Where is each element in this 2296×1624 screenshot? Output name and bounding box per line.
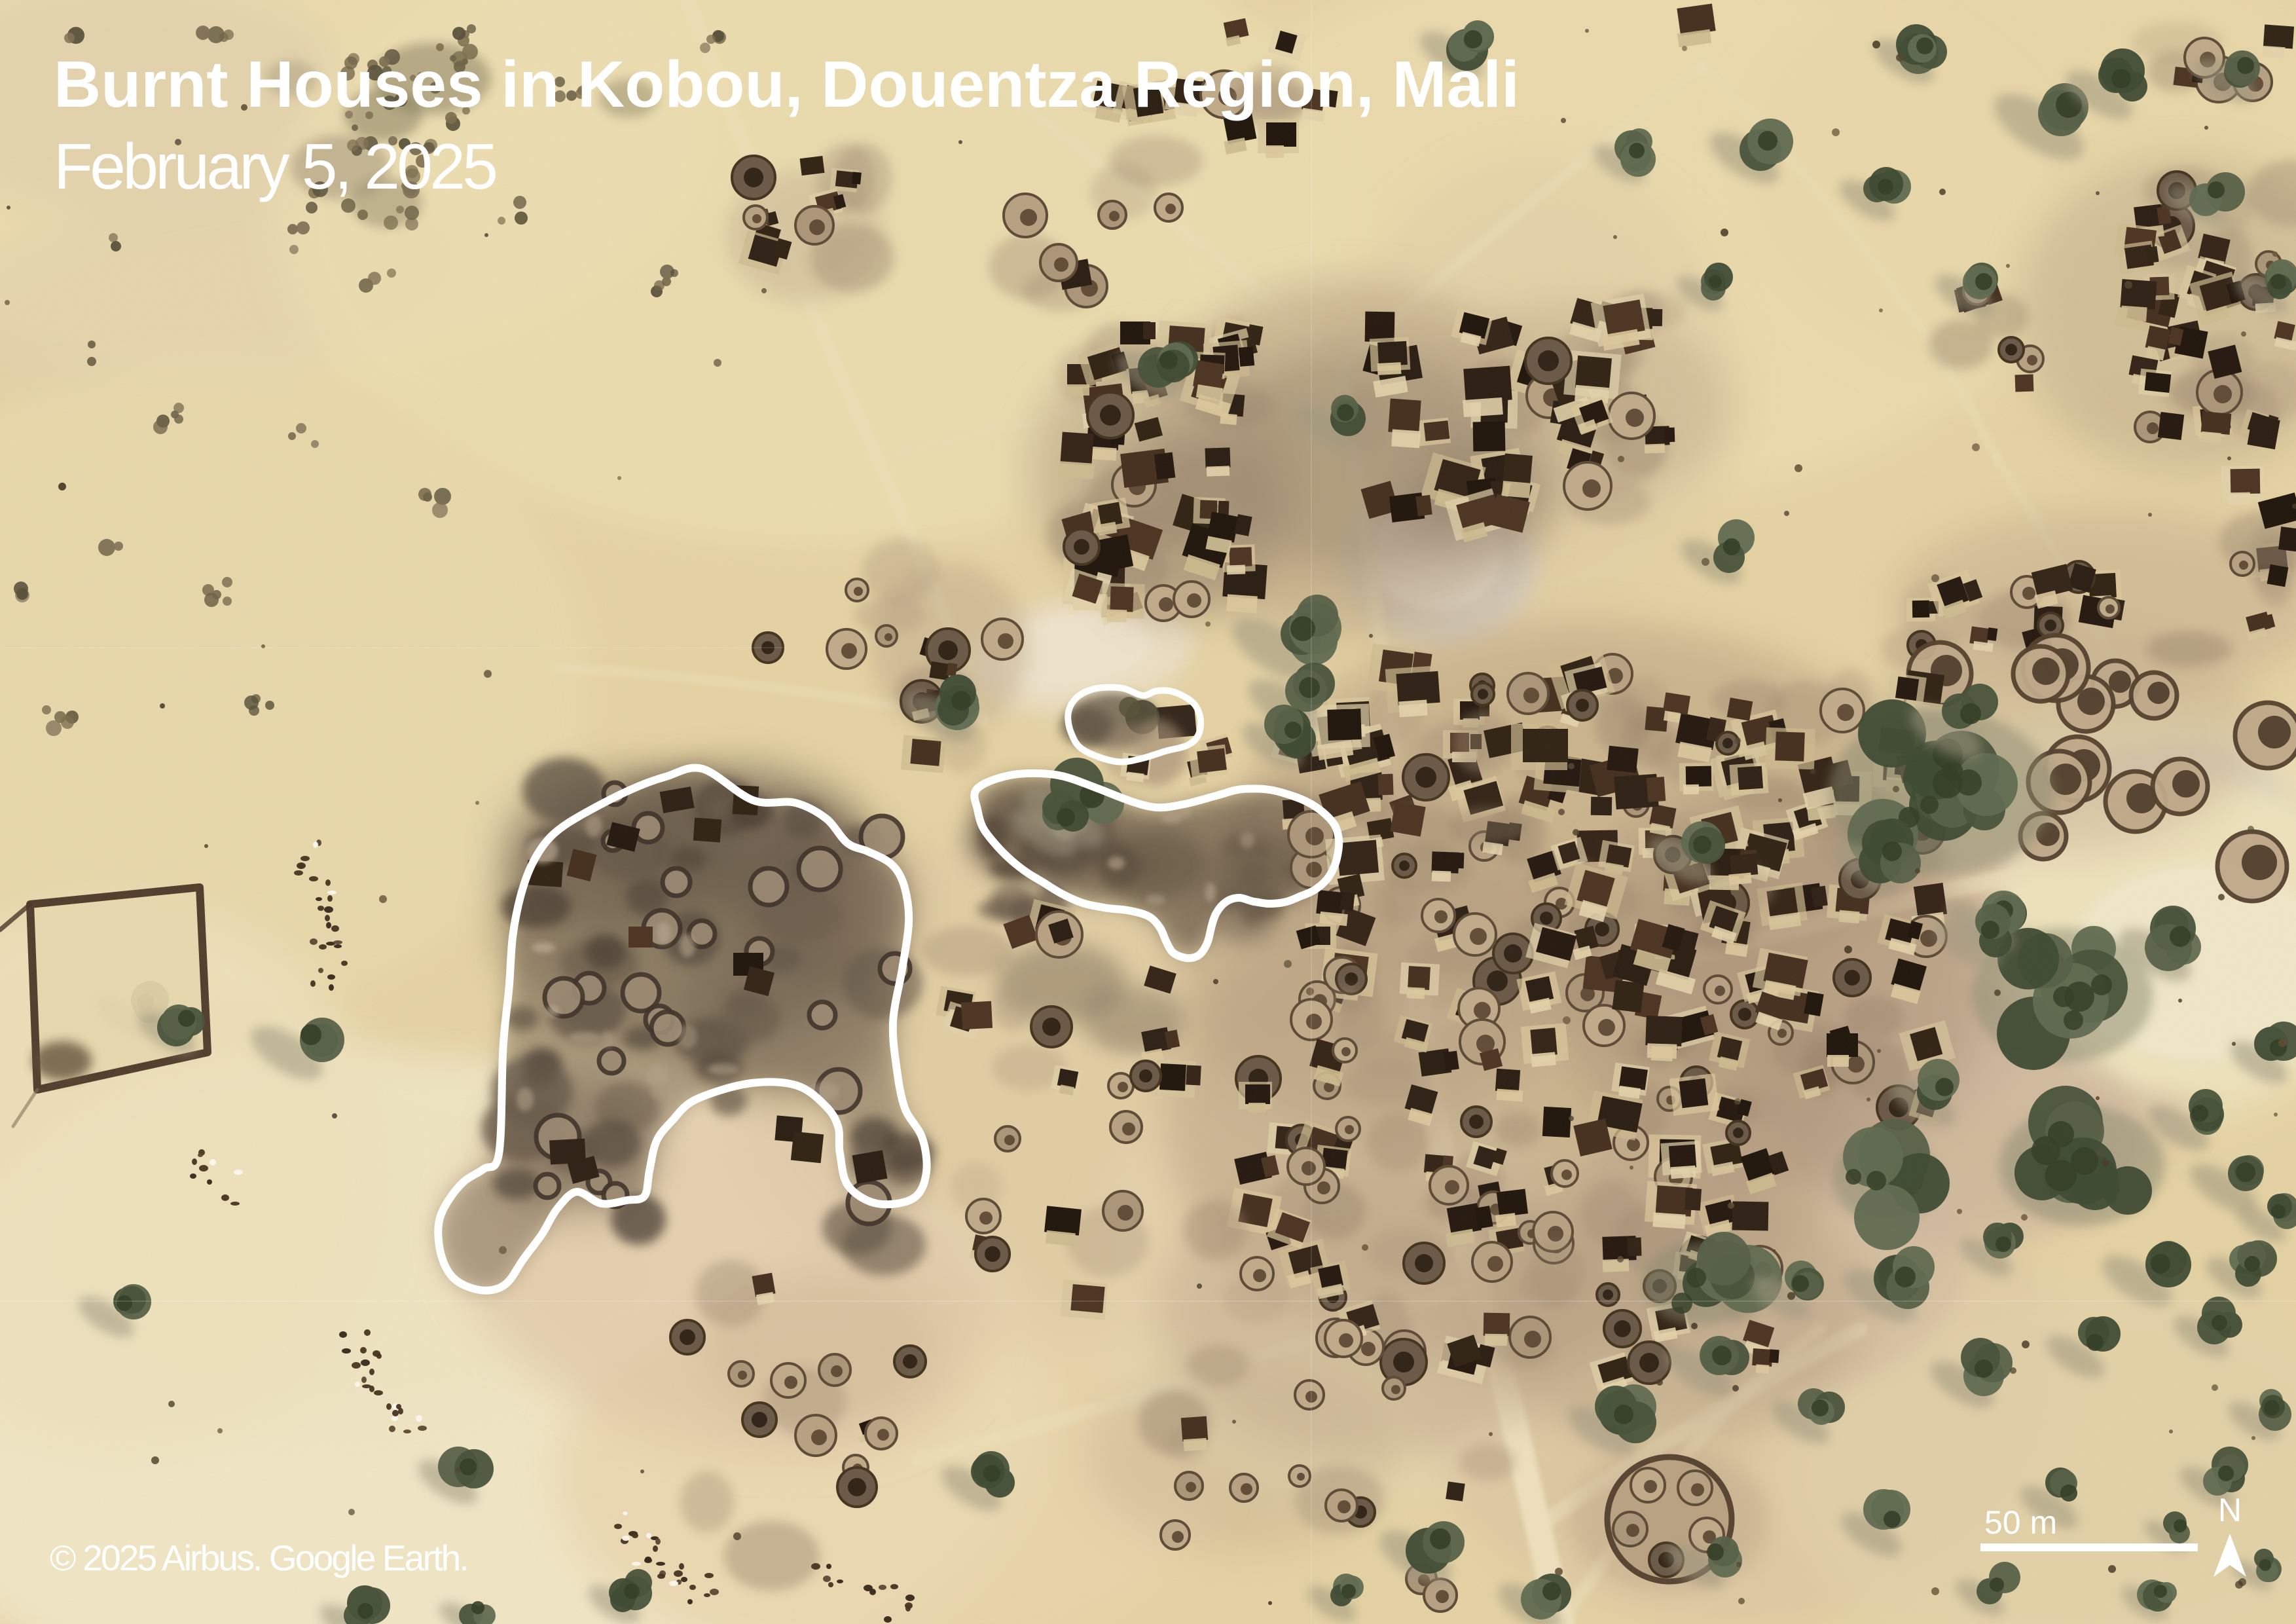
svg-text:February 5, 2025: February 5, 2025 bbox=[54, 130, 496, 202]
svg-text:Burnt Houses in Kobou, Douentz: Burnt Houses in Kobou, Douentza Region, … bbox=[54, 48, 1520, 121]
svg-text:© 2025 Airbus. Google Earth.: © 2025 Airbus. Google Earth. bbox=[50, 1538, 467, 1578]
svg-text:N: N bbox=[2218, 1492, 2242, 1528]
svg-text:50 m: 50 m bbox=[1984, 1504, 2057, 1541]
